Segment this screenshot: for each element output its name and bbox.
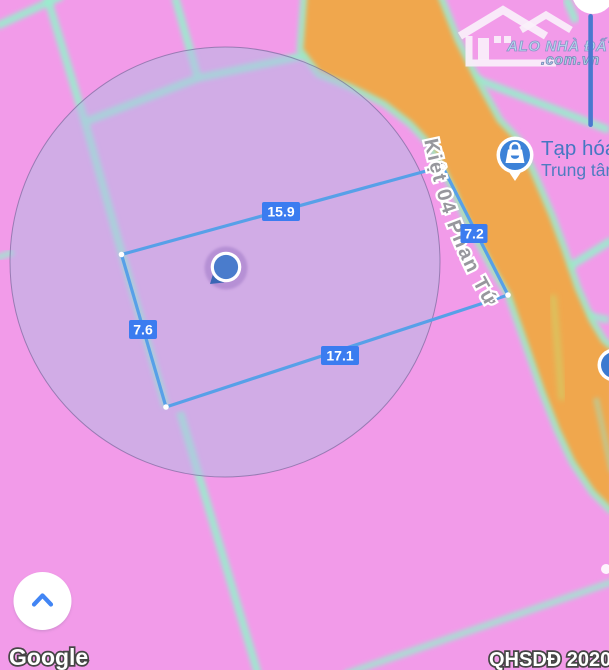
svg-text:7.2: 7.2 <box>464 226 484 242</box>
svg-text:7.6: 7.6 <box>133 322 153 338</box>
svg-text:Google: Google <box>9 644 88 670</box>
svg-text:17.1: 17.1 <box>326 348 353 364</box>
svg-text:QHSDĐ 2020: QHSDĐ 2020 <box>489 649 609 670</box>
svg-text:Tạp hóa: Tạp hóa <box>541 137 609 160</box>
svg-text:Trung tâm: Trung tâm <box>541 160 609 180</box>
svg-text:15.9: 15.9 <box>267 204 294 220</box>
